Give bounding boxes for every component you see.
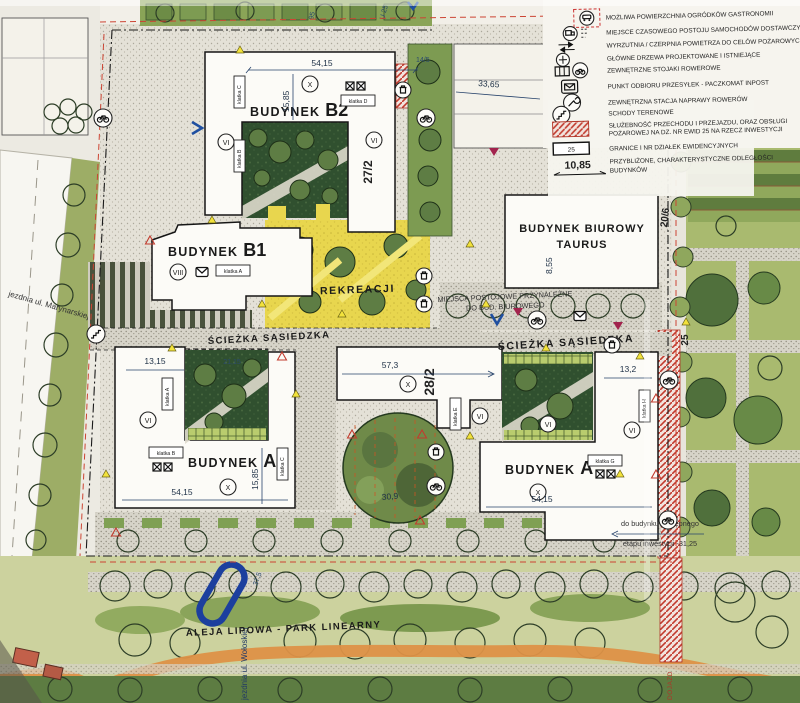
stairs-icon (87, 325, 105, 343)
bike-icon (659, 511, 677, 529)
dim-b2-depth: 15,85 (281, 90, 291, 112)
plot-boundary-number: 25 (568, 146, 576, 153)
bike-icon (94, 109, 112, 127)
trash-bin-icon (604, 337, 620, 353)
paper-edge (0, 0, 800, 6)
bike-icon (417, 109, 435, 127)
center-floors: X (406, 382, 411, 389)
b1-klatka-a: klatka A (224, 269, 243, 275)
access-annotation-dojazd: DOJAZD (667, 671, 674, 700)
parcel-27-2: 27/2 (361, 160, 375, 184)
dim-30-9: 30,9 (381, 491, 399, 502)
b2-floors: X (308, 82, 313, 89)
paper-fold (644, 300, 650, 600)
bike-icon (427, 477, 445, 495)
site-plan-svg: jezdnia ul. Marynarskiej 95 U 25 (0, 0, 800, 703)
center-klatka-e: klatka E (453, 407, 459, 426)
stairs-icon (553, 106, 570, 123)
a-left-klatka-c: klatka C (280, 457, 286, 476)
b2-klatka-c: klatka C (237, 85, 243, 104)
a-left-wing-floors: VI (145, 418, 152, 425)
b2-wing-floors-right: VI (371, 138, 378, 145)
dim-a-left-width: 54,15 (171, 487, 193, 497)
parcel-14-5: 14/5 (416, 57, 430, 64)
b2-wing-floors-left: VI (223, 140, 230, 147)
bike-icon (528, 311, 546, 329)
a-right-wing-floors: VI (629, 428, 636, 435)
a-left-klatka-a: klatka A (165, 387, 171, 406)
dim-a-left-depth: 15,85 (250, 468, 260, 490)
trash-bin-icon (428, 444, 444, 460)
trash-bin-icon (416, 296, 432, 312)
parcel-locker-icon (574, 312, 586, 321)
east-park-strip (670, 148, 800, 558)
easement-hatch-swatch (553, 121, 589, 137)
taurus-label-1: BUDYNEK BIUROWY (519, 223, 645, 235)
site-plan-photo: jezdnia ul. Marynarskiej 95 U 25 (0, 0, 800, 703)
trash-bin-icon (395, 82, 411, 98)
dim-b2-width: 54,15 (311, 58, 333, 68)
dim-21-15: 21,15 (223, 359, 241, 366)
b2-klatka-b: klatka B (237, 149, 243, 168)
west-road-zone: jezdnia ul. Marynarskiej (0, 0, 100, 560)
play-courtyard: 30,9 (343, 413, 453, 523)
dim-8-55: 8,55 (544, 257, 554, 274)
center-wing-floors: VI (477, 414, 484, 421)
dim-13-2: 13,2 (620, 364, 637, 374)
b1-floors: VIII (173, 270, 184, 277)
dim-33-65: 33,65 (478, 78, 500, 89)
a-left-floors: X (226, 485, 231, 492)
b2-klatka-d: klatka D (349, 99, 368, 105)
street-label-woloska: jezdnia ul. Wołoskiej (240, 627, 249, 701)
parcel-28-2: 28/2 (421, 368, 437, 395)
a-left-klatka-b: klatka B (157, 451, 176, 457)
distance-sample: 10,85 (564, 159, 591, 172)
b1-parcel-locker-icon (196, 268, 208, 277)
south-green-band (0, 676, 800, 703)
tree-icon (556, 53, 569, 66)
taurus-label-2: TAURUS (556, 239, 607, 251)
dim-a-right-width: 54,15 (531, 494, 553, 504)
dim-57-3: 57,3 (382, 360, 399, 370)
bike-icon (660, 371, 678, 389)
a-right-wing-floors-2: VI (545, 422, 552, 429)
trash-bin-icon (416, 268, 432, 284)
a-right-klatka-g: klatka G (595, 459, 614, 465)
dim-13-15: 13,15 (144, 356, 166, 366)
next-stage-note-2: etapu inwestycji -31,25 (623, 539, 697, 548)
parcel-25: 25 (680, 334, 691, 346)
